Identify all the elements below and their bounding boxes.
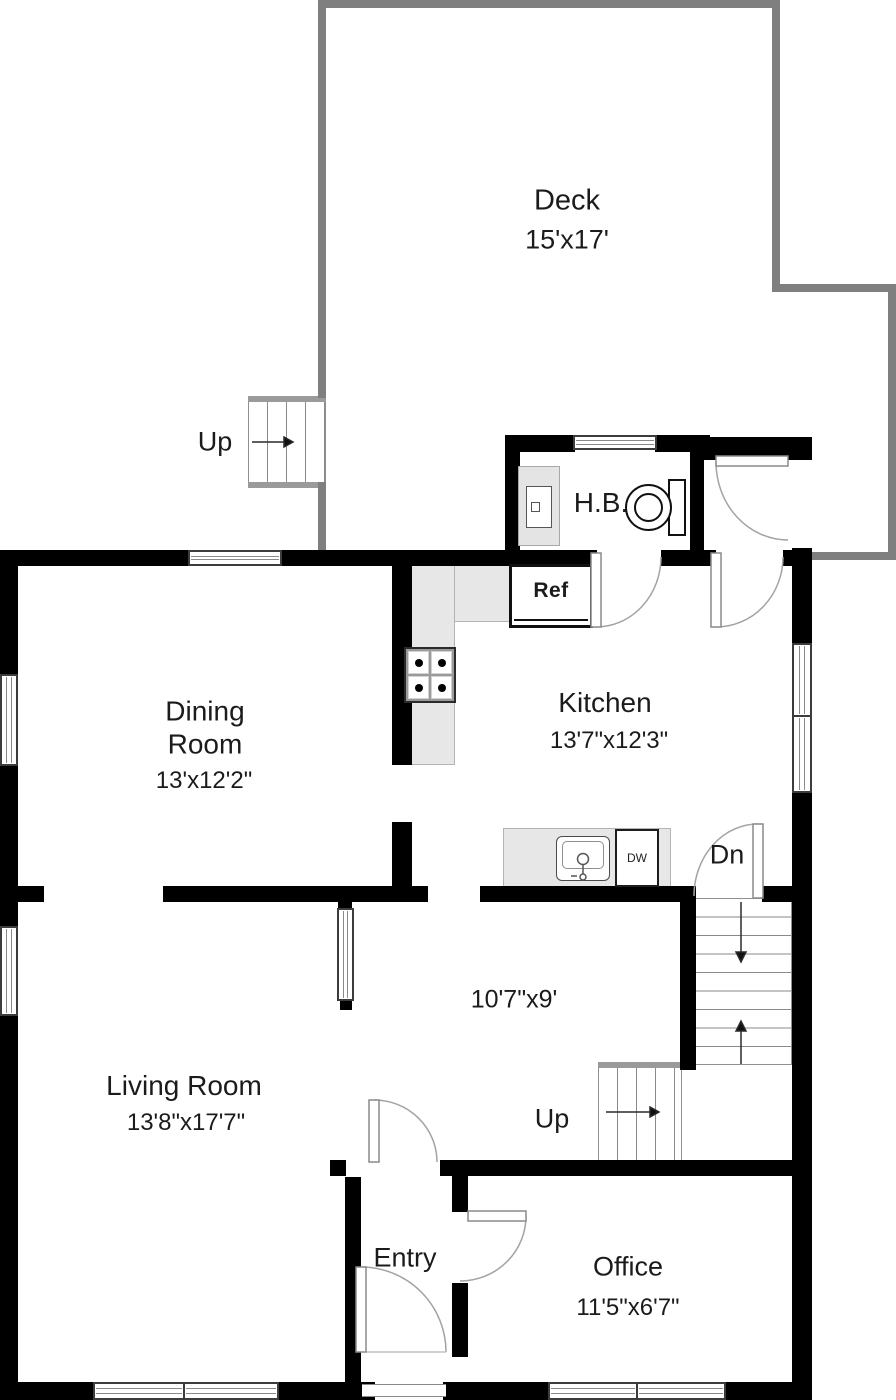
deck-stairs	[248, 396, 326, 488]
wall-entry-left	[345, 1177, 361, 1382]
wall-stair-divider	[680, 886, 696, 1070]
toilet-bowl-inner	[634, 493, 663, 522]
refrigerator-label: Ref	[533, 579, 568, 603]
front-door-arc	[361, 1267, 446, 1352]
kitchen-sink	[556, 836, 610, 881]
bathroom-vanity	[518, 466, 560, 546]
window-dining-left	[0, 674, 18, 766]
window-dining-top	[188, 550, 282, 566]
window-half-bath	[573, 435, 657, 450]
dishwasher-label: DW	[627, 851, 647, 865]
basement-stairs	[695, 898, 792, 1065]
wall-exterior-right-b	[792, 793, 812, 1400]
kitchen-dims: 13'7"x12'3"	[550, 727, 668, 755]
living-entry-door-leaf	[369, 1100, 379, 1162]
stove	[404, 647, 456, 703]
wall-dining-living-stub	[0, 886, 44, 902]
deck-wall-bottom	[806, 552, 896, 560]
entry-name: Entry	[373, 1243, 436, 1274]
window-office-bottom-left	[548, 1382, 638, 1400]
wall-top-left	[0, 550, 190, 566]
wall-exterior-right-a	[792, 548, 812, 645]
basement-stairs-label: Dn	[710, 840, 745, 871]
deck-dims: 15'x17'	[525, 225, 609, 256]
deck-name: Deck	[534, 185, 600, 218]
window-kitchen-right-lower	[792, 715, 812, 793]
half-bath-label: H.B.	[574, 487, 628, 519]
vanity-sink	[526, 486, 552, 528]
wall-bottom-seg3	[443, 1382, 550, 1400]
deck-door-arc	[716, 462, 788, 540]
wall-kitchen-dining-low	[392, 822, 412, 888]
hall-dims: 10'7"x9'	[471, 986, 558, 1015]
dishwasher: DW	[615, 829, 659, 887]
living-room-dims: 13'8"x17'7"	[127, 1109, 245, 1137]
dining-room-dims: 13'x12'2"	[156, 767, 252, 795]
living-entry-door-arc	[374, 1100, 437, 1162]
wall-stair-door-stub	[762, 886, 792, 902]
upper-stairs-top-edge	[598, 1062, 682, 1068]
wall-bottom-seg2	[278, 1382, 375, 1400]
wall-kitchen-bottom	[480, 886, 695, 902]
toilet-bowl	[625, 484, 672, 531]
stove-burner	[431, 651, 452, 674]
stove-burner	[408, 676, 429, 699]
deck-wall-step	[772, 284, 896, 292]
kitchen-sink-basin	[562, 841, 604, 869]
window-office-bottom-right	[636, 1382, 726, 1400]
wall-hall-bottom	[440, 1160, 812, 1176]
kitchen-name: Kitchen	[558, 687, 651, 719]
deck-wall-right-upper	[772, 0, 780, 290]
office-name: Office	[593, 1252, 663, 1283]
wall-dining-living	[163, 886, 428, 902]
wall-hall-top	[690, 437, 812, 460]
window-living-bottom-right	[183, 1382, 279, 1400]
pocket-door-leaf	[337, 908, 354, 1001]
kitchen-hall-door-arc	[716, 557, 783, 627]
front-door-threshold	[362, 1384, 446, 1397]
dining-room-name: Dining Room	[130, 695, 280, 761]
window-living-left	[0, 926, 18, 1016]
wall-entry-office-up	[452, 1160, 468, 1212]
half-bath-door-arc	[596, 557, 661, 627]
window-living-bottom-left	[93, 1382, 185, 1400]
vanity-faucet	[531, 502, 540, 512]
deck-stairs-top-edge	[248, 396, 326, 402]
deck-stairs-label: Up	[198, 427, 233, 458]
deck-wall-left-lower	[318, 482, 326, 554]
wall-bottom-seg1	[0, 1382, 95, 1400]
deck-stairs-bottom-edge	[248, 482, 326, 488]
wall-bottom-seg4	[725, 1382, 812, 1400]
floor-plan: DW	[0, 0, 896, 1400]
window-kitchen-right-upper	[792, 643, 812, 717]
office-dims: 11'5"x6'7"	[576, 1294, 679, 1322]
office-door-leaf	[468, 1211, 526, 1221]
deck-wall-left-upper	[318, 0, 326, 398]
upper-stairs	[598, 1066, 682, 1162]
wall-hall-bottom-left	[330, 1160, 346, 1176]
stove-burner	[431, 676, 452, 699]
wall-stub-hb-kitchen	[661, 550, 716, 566]
office-door-arc	[460, 1216, 526, 1281]
refrigerator-handle-line	[514, 619, 588, 621]
stove-burner	[408, 651, 429, 674]
pocket-door-stub-bottom	[340, 1000, 352, 1010]
deck-wall-far-right	[888, 284, 896, 560]
living-room-name: Living Room	[106, 1070, 262, 1102]
wall-entry-office-low	[452, 1283, 468, 1357]
deck-wall-top	[318, 0, 780, 8]
upper-stairs-label: Up	[535, 1104, 570, 1135]
